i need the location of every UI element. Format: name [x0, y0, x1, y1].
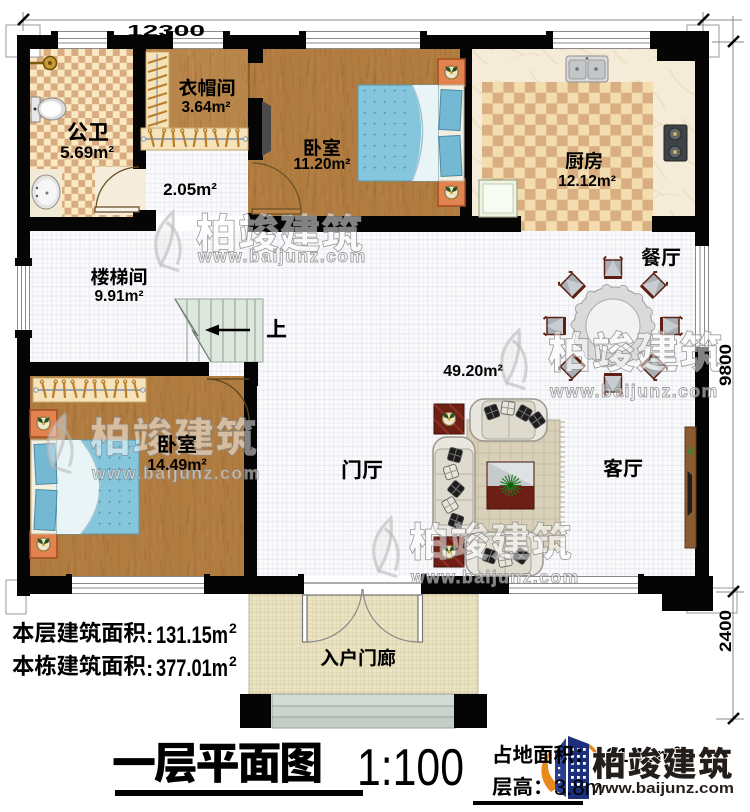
- svg-text:+: +: [128, 445, 132, 451]
- svg-text:+: +: [363, 144, 367, 150]
- svg-text:+: +: [393, 166, 397, 172]
- svg-text:2: 2: [229, 620, 237, 636]
- svg-text:+: +: [393, 155, 397, 161]
- svg-text:+: +: [383, 166, 387, 172]
- svg-text:+: +: [373, 166, 377, 172]
- svg-text:+: +: [403, 155, 407, 161]
- svg-text:+: +: [393, 89, 397, 95]
- svg-text:+: +: [108, 511, 112, 517]
- svg-text:14.49m²: 14.49m²: [147, 457, 207, 474]
- svg-text:12300: 12300: [127, 23, 205, 40]
- svg-text:+: +: [98, 500, 102, 506]
- svg-text:+: +: [403, 111, 407, 117]
- svg-text:+: +: [128, 500, 132, 506]
- svg-text:+: +: [393, 111, 397, 117]
- svg-text:1:100: 1:100: [357, 739, 464, 797]
- svg-text:5.69m²: 5.69m²: [60, 143, 114, 162]
- svg-text:+: +: [118, 511, 122, 517]
- svg-text:2400: 2400: [716, 610, 735, 652]
- svg-text:+: +: [108, 522, 112, 528]
- svg-text:12.12m²: 12.12m²: [558, 173, 616, 190]
- svg-text:+: +: [373, 100, 377, 106]
- svg-text:+: +: [373, 89, 377, 95]
- svg-text:+: +: [98, 522, 102, 528]
- svg-text:+: +: [363, 100, 367, 106]
- svg-text:+: +: [363, 166, 367, 172]
- svg-text:www.baijunz.com: www.baijunz.com: [410, 567, 580, 587]
- svg-text:+: +: [393, 144, 397, 150]
- svg-text:+: +: [373, 144, 377, 150]
- svg-text:+: +: [403, 122, 407, 128]
- svg-text:+: +: [383, 155, 387, 161]
- svg-text:11.20m²: 11.20m²: [294, 156, 351, 173]
- svg-text:+: +: [393, 133, 397, 139]
- svg-text:+: +: [373, 122, 377, 128]
- svg-text:+: +: [108, 456, 112, 462]
- svg-text:+: +: [363, 111, 367, 117]
- svg-text:+: +: [128, 456, 132, 462]
- svg-text:+: +: [118, 489, 122, 495]
- svg-text:+: +: [98, 456, 102, 462]
- svg-text:+: +: [383, 89, 387, 95]
- svg-text:+: +: [393, 100, 397, 106]
- svg-text:+: +: [393, 122, 397, 128]
- svg-text:+: +: [98, 489, 102, 495]
- svg-text:www.baijunz.com: www.baijunz.com: [197, 246, 367, 266]
- svg-text:+: +: [363, 155, 367, 161]
- svg-text:+: +: [383, 144, 387, 150]
- svg-text:377.01m: 377.01m: [156, 655, 228, 682]
- svg-text:49.20m²: 49.20m²: [443, 363, 503, 380]
- svg-text:+: +: [108, 489, 112, 495]
- svg-text:9800: 9800: [716, 344, 735, 386]
- svg-text:www.baijunz.com: www.baijunz.com: [549, 381, 719, 401]
- svg-text:+: +: [128, 522, 132, 528]
- svg-text:2.05m²: 2.05m²: [163, 180, 217, 199]
- svg-text:+: +: [118, 500, 122, 506]
- svg-text:+: +: [98, 511, 102, 517]
- svg-text:+: +: [403, 100, 407, 106]
- svg-text:+: +: [118, 456, 122, 462]
- svg-text:+: +: [363, 133, 367, 139]
- svg-text:+: +: [363, 89, 367, 95]
- svg-text:www.baijunz.com: www.baijunz.com: [591, 780, 734, 797]
- svg-text:131.15m: 131.15m: [156, 622, 228, 649]
- svg-text:+: +: [383, 122, 387, 128]
- svg-text:+: +: [128, 489, 132, 495]
- svg-text::: :: [146, 656, 153, 681]
- svg-text:+: +: [403, 89, 407, 95]
- svg-text:+: +: [373, 133, 377, 139]
- svg-text:+: +: [118, 522, 122, 528]
- svg-text:+: +: [383, 133, 387, 139]
- svg-text:2: 2: [229, 653, 237, 669]
- svg-text:+: +: [383, 111, 387, 117]
- svg-text:+: +: [373, 155, 377, 161]
- svg-text::: :: [146, 623, 153, 648]
- svg-text:+: +: [403, 166, 407, 172]
- svg-text:+: +: [403, 133, 407, 139]
- svg-text:+: +: [383, 100, 387, 106]
- svg-text:+: +: [108, 500, 112, 506]
- svg-text:+: +: [363, 122, 367, 128]
- svg-text:3.64m²: 3.64m²: [181, 99, 230, 116]
- svg-text:9.91m²: 9.91m²: [94, 288, 143, 305]
- svg-text:+: +: [373, 111, 377, 117]
- svg-text:+: +: [128, 511, 132, 517]
- svg-text:+: +: [403, 144, 407, 150]
